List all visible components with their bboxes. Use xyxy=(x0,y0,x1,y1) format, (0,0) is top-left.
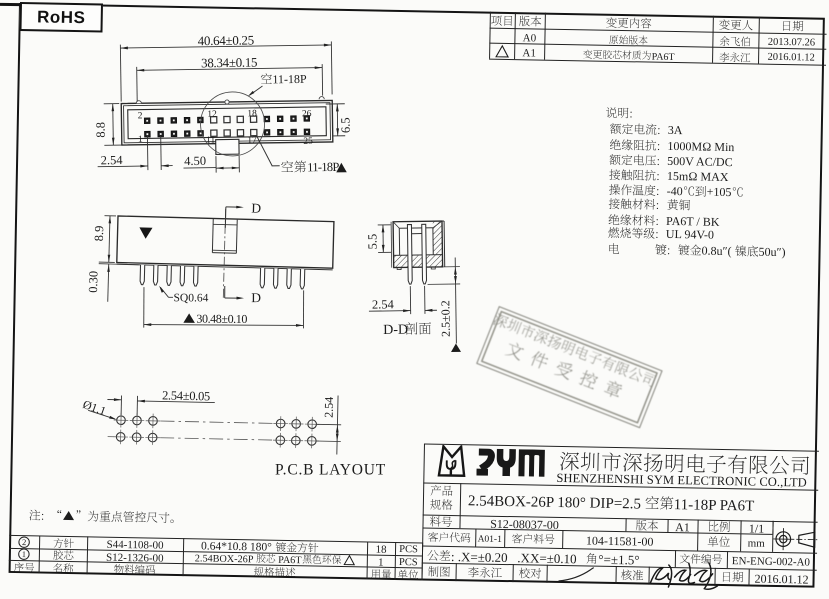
svg-text:Ø1.1: Ø1.1 xyxy=(81,397,108,418)
svg-text:P.C.B LAYOUT: P.C.B LAYOUT xyxy=(275,462,386,479)
svg-text:2.54±0.05: 2.54±0.05 xyxy=(162,388,210,403)
svg-text:2.54: 2.54 xyxy=(322,397,336,418)
